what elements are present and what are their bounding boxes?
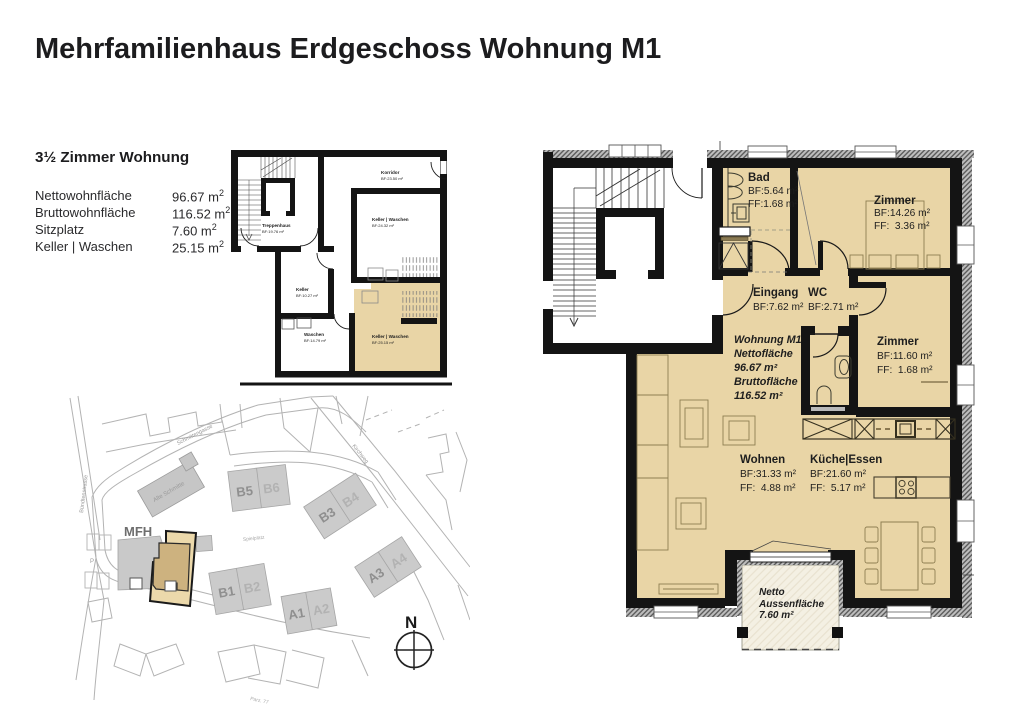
svg-text:BF:19.76 m²: BF:19.76 m² <box>262 229 285 234</box>
svg-text:FF: 1.68 m²: FF: 1.68 m² <box>877 365 933 376</box>
svg-text:P: P <box>90 559 94 565</box>
svg-text:BF:5.64 m²: BF:5.64 m² <box>748 186 799 197</box>
svg-text:FF: 3.36 m²: FF: 3.36 m² <box>874 221 930 232</box>
svg-text:96.67 m²: 96.67 m² <box>734 362 778 374</box>
svg-text:B2: B2 <box>243 579 262 597</box>
svg-text:Küche|Essen: Küche|Essen <box>810 454 882 466</box>
svg-text:Bruttofläche: Bruttofläche <box>734 376 798 388</box>
svg-text:BF:31.33 m²: BF:31.33 m² <box>740 469 797 480</box>
svg-text:7.60 m²: 7.60 m² <box>759 610 794 621</box>
svg-text:BF:24.32 m²: BF:24.32 m² <box>372 223 395 228</box>
svg-text:B6: B6 <box>262 480 280 497</box>
svg-text:Keller | Waschen: Keller | Waschen <box>372 334 409 339</box>
svg-text:Kirchweg: Kirchweg <box>350 443 369 464</box>
svg-text:Eingang: Eingang <box>753 287 798 299</box>
svg-text:Keller: Keller <box>296 287 309 292</box>
svg-text:Aussenfläche: Aussenfläche <box>758 599 824 610</box>
svg-text:Netto: Netto <box>759 587 785 598</box>
svg-text:N: N <box>405 613 417 632</box>
svg-text:BF:21.60 m²: BF:21.60 m² <box>810 469 867 480</box>
svg-text:Treppenhaus: Treppenhaus <box>262 223 291 228</box>
svg-text:Korridor: Korridor <box>381 170 400 175</box>
svg-text:A1: A1 <box>287 605 306 623</box>
svg-text:WC: WC <box>808 287 827 299</box>
svg-text:FF: 4.88 m²: FF: 4.88 m² <box>740 483 796 494</box>
svg-text:B5: B5 <box>235 483 253 500</box>
svg-text:Bad: Bad <box>748 172 770 184</box>
svg-text:BF:2.71 m²: BF:2.71 m² <box>808 302 859 313</box>
svg-text:Wohnung M1: Wohnung M1 <box>734 334 802 346</box>
svg-text:BF:23.50 m²: BF:23.50 m² <box>381 176 404 181</box>
svg-text:FF:1.68 m²: FF:1.68 m² <box>748 199 798 210</box>
svg-text:B1: B1 <box>217 583 236 601</box>
svg-text:Zimmer: Zimmer <box>874 195 916 207</box>
svg-text:FF: 5.17 m²: FF: 5.17 m² <box>810 483 866 494</box>
svg-text:BF:11.60 m²: BF:11.60 m² <box>877 351 933 362</box>
svg-text:BF:14.26 m²: BF:14.26 m² <box>874 208 931 219</box>
svg-text:MFH: MFH <box>124 524 152 539</box>
svg-text:BF:7.62 m²: BF:7.62 m² <box>753 302 804 313</box>
svg-text:BF:10.27 m²: BF:10.27 m² <box>296 293 319 298</box>
svg-text:Zimmer: Zimmer <box>877 336 919 348</box>
svg-text:BF:14.79 m²: BF:14.79 m² <box>304 338 327 343</box>
svg-text:Waschen: Waschen <box>304 332 324 337</box>
svg-text:116.52 m²: 116.52 m² <box>734 390 783 402</box>
svg-text:Spielplatz: Spielplatz <box>243 535 266 543</box>
svg-text:BF:25.15 m²: BF:25.15 m² <box>372 340 395 345</box>
svg-text:A2: A2 <box>312 601 331 619</box>
svg-text:Keller | Waschen: Keller | Waschen <box>372 217 409 222</box>
svg-text:Parz. 77: Parz. 77 <box>250 696 270 706</box>
svg-text:Wohnen: Wohnen <box>740 454 785 466</box>
svg-text:Nettofläche: Nettofläche <box>734 348 793 360</box>
